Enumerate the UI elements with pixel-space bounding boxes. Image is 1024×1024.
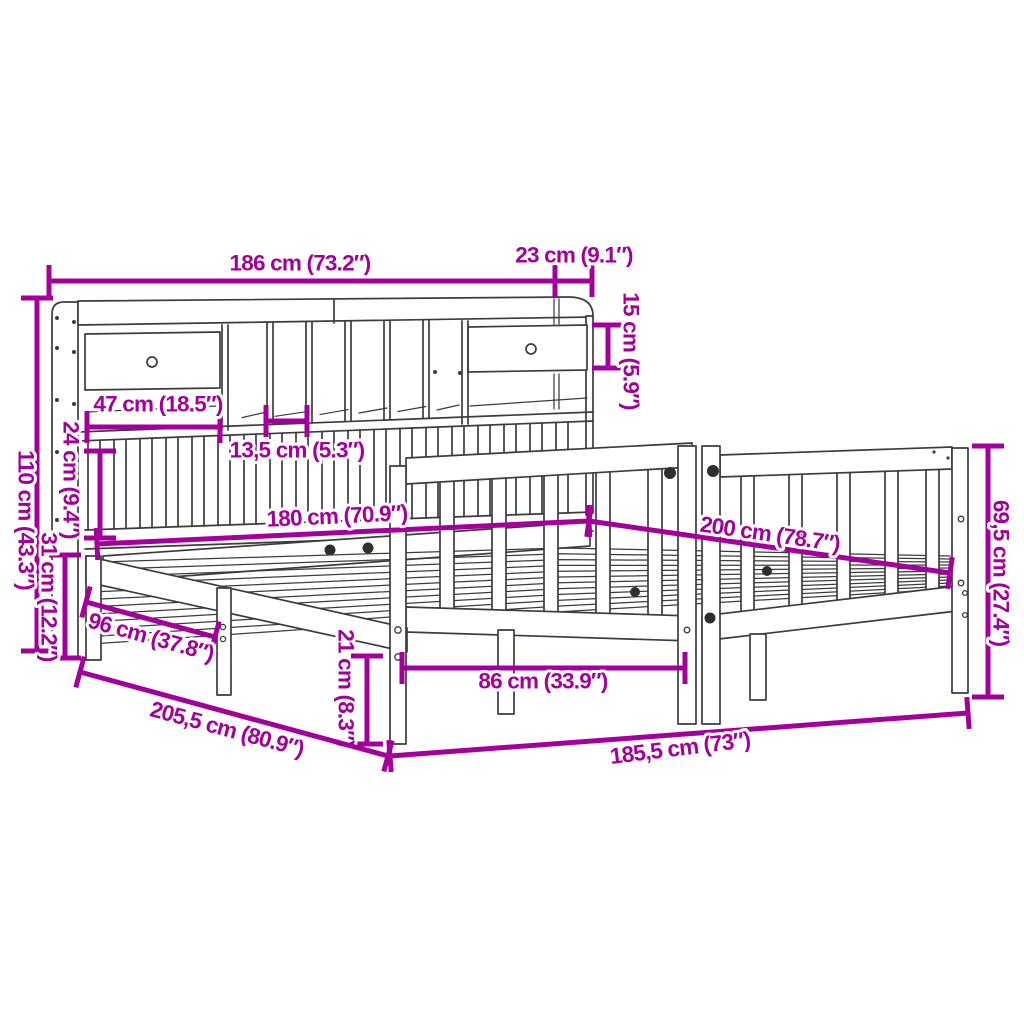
dimension-label-base-height: 31 cm (12.2″) (37, 532, 62, 662)
dimension-leg-spacing: 86 cm (33.9″) (402, 652, 685, 694)
dimension-label-frame-side-depth: 96 cm (37.8″) (85, 608, 216, 667)
dimension-label-leg-spacing: 86 cm (33.9″) (478, 669, 608, 694)
bolt-icon (363, 543, 373, 553)
dimension-bookcase-width: 186 cm (73.2″) (49, 251, 555, 298)
dimension-tick (96, 528, 97, 560)
shelf-slot-dividers (242, 320, 459, 425)
end-post (952, 448, 968, 693)
bolt-icon (763, 567, 772, 576)
bolt-icon (665, 468, 676, 479)
bolt-icon (705, 613, 715, 623)
dimension-label-slot-width: 13,5 cm (5.3″) (230, 438, 365, 463)
dimension-footboard-height: 69,5 cm (27.4″) (972, 446, 1014, 697)
bookcase-top-board (78, 297, 593, 325)
dimension-label-shelf-opening-height: 24 cm (9.4″) (59, 421, 84, 539)
bolt-icon (325, 545, 335, 555)
rail-top-board-right (720, 447, 952, 477)
middle-post-b (702, 446, 720, 724)
dimension-label-headboard-height: 110 cm (43.3″) (14, 450, 39, 590)
bolt-icon (708, 466, 719, 477)
dimension-bookcase-depth: 23 cm (9.1″) (515, 243, 633, 298)
dimension-label-rail-height: 21 cm (8.3″) (334, 629, 359, 747)
dimension-label-footboard-height: 69,5 cm (27.4″) (989, 500, 1014, 647)
mid-leg-right (750, 634, 766, 700)
dimension-tick (389, 740, 391, 772)
diagram-stage: 186 cm (73.2″)23 cm (9.1″)15 cm (5.9″)11… (0, 0, 1024, 1024)
dimension-tick (967, 697, 969, 729)
dimension-rail-height: 21 cm (8.3″) (334, 629, 384, 747)
dimension-label-top-shelf-height: 15 cm (5.9″) (619, 292, 644, 410)
dimension-top-shelf-height: 15 cm (5.9″) (592, 292, 644, 410)
dimension-label-bookcase-width: 186 cm (73.2″) (230, 251, 371, 276)
bed-dimension-diagram: 186 cm (73.2″)23 cm (9.1″)15 cm (5.9″)11… (0, 0, 1024, 1024)
dimension-drawer-width: 47 cm (18.5″) (87, 392, 223, 444)
dimension-label-drawer-width: 47 cm (18.5″) (93, 392, 223, 417)
dimension-label-bookcase-depth: 23 cm (9.1″) (515, 243, 633, 268)
dimension-label-mattress-width: 180 cm (70.9″) (266, 500, 408, 532)
bolt-icon (631, 588, 640, 597)
